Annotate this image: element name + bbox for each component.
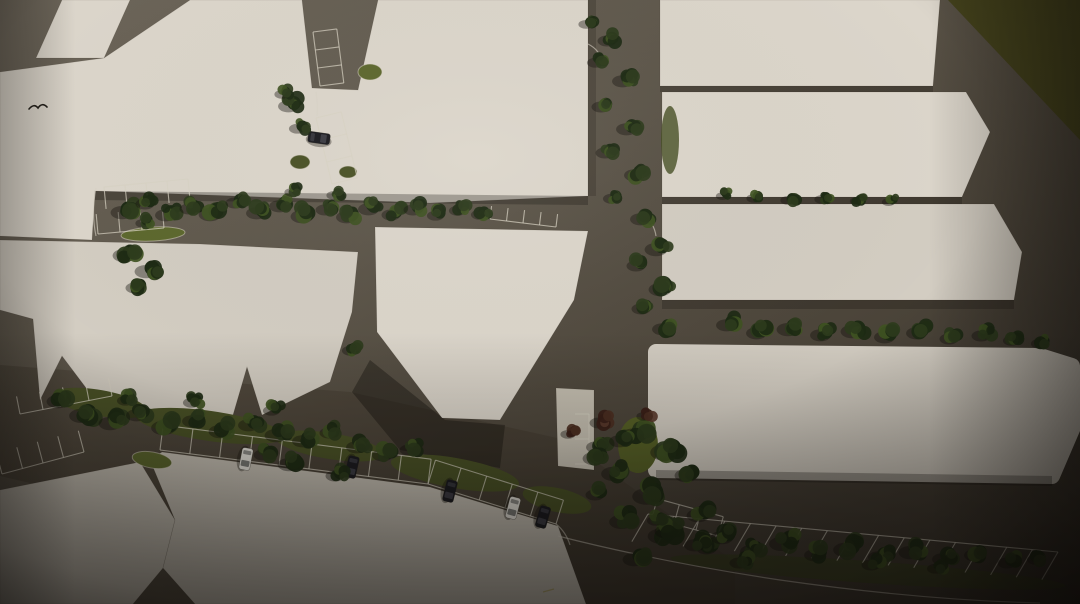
site-plan-rendering [0,0,1080,604]
aerial-render-canvas [0,0,1080,604]
vignette-left [0,0,1080,604]
